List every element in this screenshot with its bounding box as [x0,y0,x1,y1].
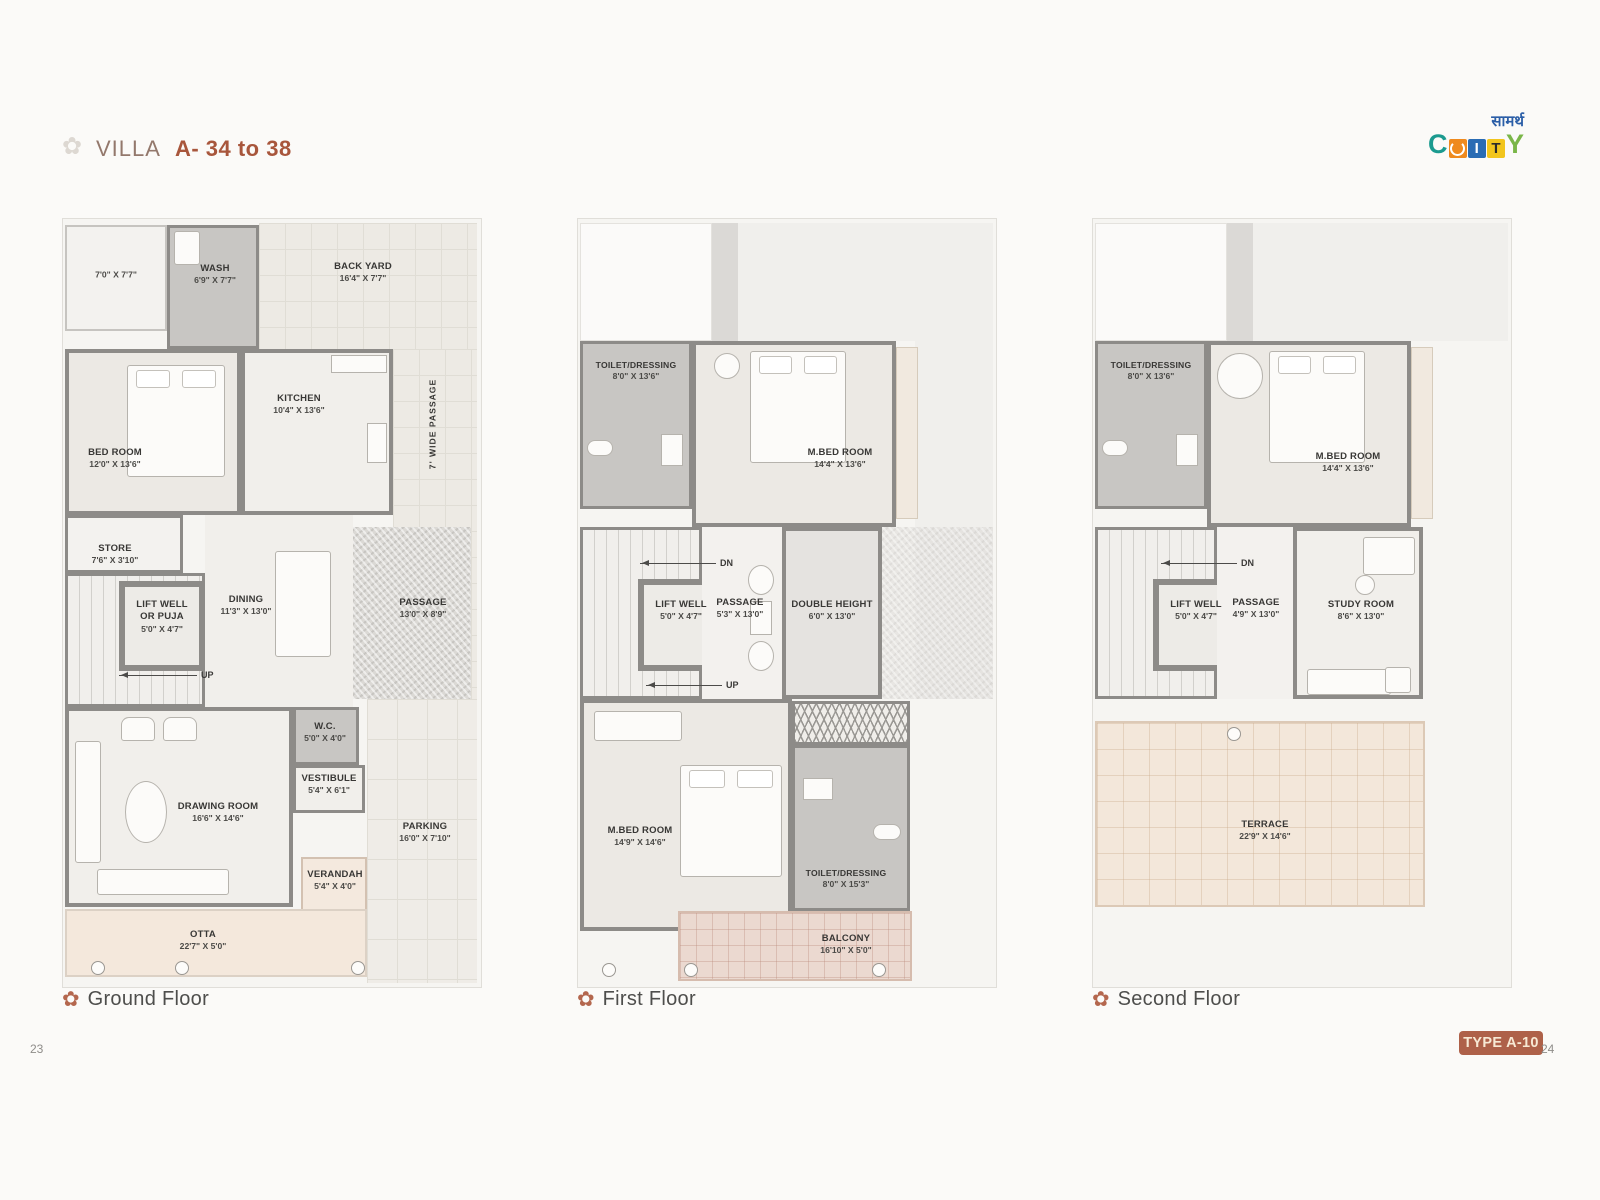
logo-letter-i: I [1468,139,1486,158]
room-label-lift-well: LIFT WELL 5'0" X 4'7" [655,599,706,623]
first-floor-caption: ✿ First Floor [577,988,696,1011]
sofa-left [75,741,101,863]
terrace-area [1095,721,1425,907]
type-badge: TYPE A-10 [1459,1031,1543,1055]
side-stool [714,353,740,379]
room-label-otta: OTTA 22'7" X 5'0" [180,929,227,953]
logo-swirl-icon [1449,139,1467,158]
room-label-lift-well: LIFT WELL 5'0" X 4'7" [1170,599,1221,623]
room-label-store: STORE 7'6" X 3'10" [92,543,139,567]
void-area [882,527,993,699]
room-label-bed-room: BED ROOM 12'0" X 13'6" [88,447,142,471]
sofa [594,711,682,741]
ground-floor-plan: UP 7'0" X 7'7" WASH 6'9" X 7'7" BACK YAR… [62,218,482,988]
toilet-fixture [1102,440,1128,456]
void-area [738,223,993,341]
column [684,963,698,977]
dn-arrow [1161,563,1237,564]
samarth-city-logo: सामर्थ C I T Y [1428,114,1524,158]
flower-icon: ✿ [62,132,82,161]
room-label-wash: WASH 6'9" X 7'7" [194,263,236,287]
room-label-terrace: TERRACE 22'9" X 14'6" [1239,819,1290,843]
void-area [1253,223,1508,341]
flower-icon: ✿ [62,989,80,1010]
sofa-bottom [97,869,229,895]
room-label-lift-well: LIFT WELL OR PUJA 5'0" X 4'7" [136,599,187,635]
stove [367,423,387,463]
up-arrow [119,675,197,676]
logo-letter-c: C [1428,131,1448,158]
logo-hindi-text: सामर्थ [1428,114,1524,129]
page-number-left: 23 [30,1042,43,1056]
flower-icon: ✿ [577,989,595,1010]
floor-caption-label: First Floor [603,988,696,1011]
room-label-verandah: VERANDAH 5'4" X 4'0" [307,869,362,893]
page-number-right: 24 [1541,1042,1554,1056]
floor-caption-label: Ground Floor [88,988,209,1011]
kitchen-counter [331,355,387,373]
round-chair [1217,353,1263,399]
window-seat [1411,347,1433,519]
room-label-toilet-dressing-2: TOILET/DRESSING 8'0" X 15'3" [806,868,887,890]
room-label-double-height: DOUBLE HEIGHT 6'0" X 13'0" [791,599,872,623]
window-seat [896,347,918,519]
washbasin [1176,434,1198,466]
column [1227,727,1241,741]
toilet-fixture [873,824,901,840]
room-label-balcony: BALCONY 16'10" X 5'0" [820,933,871,957]
armchair [121,717,155,741]
void-area [1227,223,1253,341]
chair [748,641,774,671]
void-area [580,223,712,341]
room-label-wide-passage: 7' WIDE PASSAGE [427,379,438,469]
desk-chair [1355,575,1375,595]
dn-arrow-label: DN [1241,558,1254,568]
column [175,961,189,975]
room-label-dining: DINING 11'3" X 13'0" [221,594,272,618]
title-prefix: VILLA [96,136,161,161]
room-label-passage: PASSAGE 4'9" X 13'0" [1232,597,1279,621]
bed-room [65,349,241,515]
dining-table [275,551,331,657]
room-label-open-area: 7'0" X 7'7" [95,269,137,280]
room-label-study-room: STUDY ROOM 8'6" X 13'0" [1328,599,1394,623]
floor-caption-label: Second Floor [1118,988,1241,1011]
room-label-kitchen: KITCHEN 10'4" X 13'6" [273,393,324,417]
back-yard-area [259,223,477,349]
washbasin [803,778,833,800]
bed [680,765,782,877]
room-label-back-yard: BACK YARD 16'4" X 7'7" [334,261,392,285]
side-table [1385,667,1411,693]
room-label-mbed-room: M.BED ROOM 14'4" X 13'6" [1316,451,1381,475]
void-area [712,223,738,341]
column [91,961,105,975]
master-bed-room [692,341,896,527]
chair [748,565,774,595]
page-title: VILLAA- 34 to 38 [96,136,292,162]
room-label-toilet-dressing: TOILET/DRESSING 8'0" X 13'6" [1111,360,1192,382]
second-floor-plan: DN TOILET/DRESSING 8'0" X 13'6" M.BED RO… [1092,218,1512,988]
column [872,963,886,977]
title-range: A- 34 to 38 [175,136,292,161]
column [351,961,365,975]
room-label-wc: W.C. 5'0" X 4'0" [304,721,346,745]
column [602,963,616,977]
room-label-passage: PASSAGE 5'3" X 13'0" [716,597,763,621]
wardrobe [792,701,910,745]
room-label-passage: PASSAGE 13'0" X 8'9" [399,597,446,621]
dn-arrow-label: DN [720,558,733,568]
master-bed-room [1207,341,1411,527]
room-label-mbed-room: M.BED ROOM 14'4" X 13'6" [808,447,873,471]
center-table [125,781,167,843]
logo-letter-y: Y [1506,131,1524,158]
sofa [1307,669,1391,695]
second-floor-caption: ✿ Second Floor [1092,988,1240,1011]
flower-icon: ✿ [1092,989,1110,1010]
void-area [1095,223,1227,341]
logo-letter-t: T [1487,139,1505,158]
ground-floor-caption: ✿ Ground Floor [62,988,209,1011]
room-label-mbed-room-2: M.BED ROOM 14'9" X 14'6" [608,825,673,849]
up-arrow [646,685,722,686]
master-bed-room-2 [580,699,792,931]
first-floor-plan: DN UP TOILET/DRESSING 8'0" X 13'6" M.BED… [577,218,997,988]
room-label-toilet-dressing: TOILET/DRESSING 8'0" X 13'6" [596,360,677,382]
bed [750,351,846,463]
bed [1269,351,1365,463]
toilet-fixture [587,440,613,456]
dn-arrow [640,563,716,564]
room-label-vestibule: VESTIBULE 5'4" X 6'1" [301,773,356,797]
kitchen-room [241,349,393,515]
desk [1363,537,1415,575]
room-label-drawing-room: DRAWING ROOM 16'6" X 14'6" [178,801,259,825]
washbasin [661,434,683,466]
up-arrow-label: UP [726,680,739,690]
up-arrow-label: UP [201,670,214,680]
room-label-parking: PARKING 16'0" X 7'10" [399,821,450,845]
armchair [163,717,197,741]
logo-city-text: C I T Y [1428,131,1524,158]
wash-room [167,225,259,349]
